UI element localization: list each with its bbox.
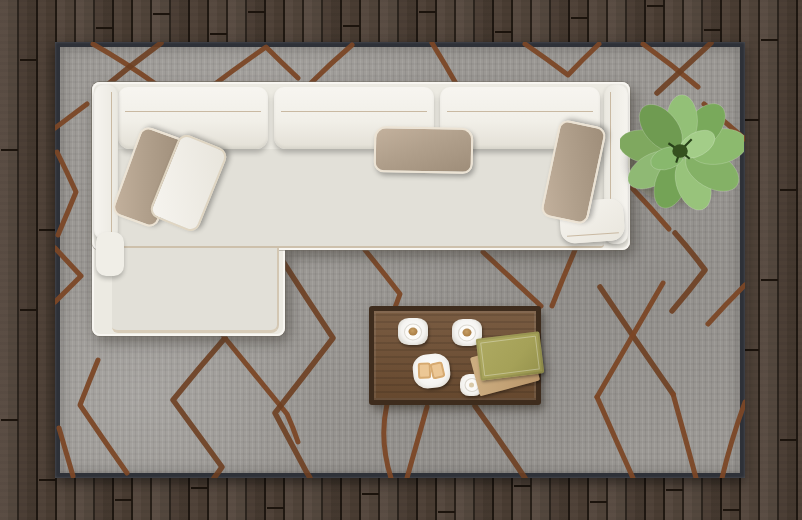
- coffee-cup-left: [398, 318, 428, 345]
- potted-plant: [620, 87, 744, 215]
- throw-pillow-taupe-center: [374, 126, 474, 174]
- cup-highlight: [469, 383, 474, 388]
- book-olive: [476, 331, 545, 380]
- armrest-left: [94, 84, 118, 240]
- living-room-scene: [0, 0, 802, 520]
- plant-center: [672, 144, 688, 158]
- coffee: [409, 328, 418, 336]
- armrest-left-end-cushion: [96, 232, 124, 276]
- toast-plate: [411, 352, 451, 390]
- coffee-table: [369, 306, 541, 405]
- coffee: [463, 329, 472, 337]
- cup: [458, 324, 476, 341]
- toast-slice: [429, 361, 445, 380]
- cup: [404, 323, 422, 340]
